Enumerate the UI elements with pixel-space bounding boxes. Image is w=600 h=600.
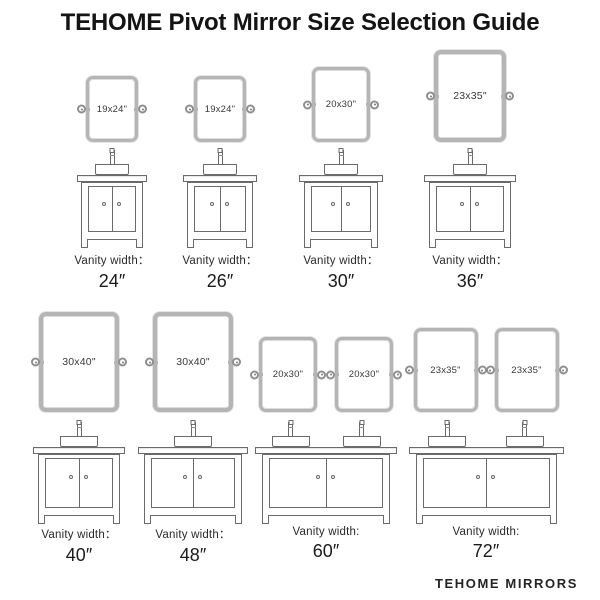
vanity-width-label: Vanity width： (182, 252, 257, 268)
cabinet (429, 182, 511, 240)
countertop (138, 447, 248, 454)
pivot-hardware-icon (31, 358, 40, 367)
sink-icon (174, 436, 212, 447)
door-knob-icon (331, 475, 335, 479)
cabinet (187, 182, 253, 240)
cabinet-leg (246, 239, 253, 248)
countertop (77, 175, 147, 182)
pivot-mirror: 23x35" (495, 328, 559, 412)
pivot-hardware-icon (559, 366, 568, 375)
faucet-icon (288, 422, 293, 436)
mirror-zone: 19x24" (194, 48, 246, 142)
vanity-width-label: Vanity width： (432, 252, 507, 268)
countertop (33, 447, 125, 454)
mirror-size-label: 20x30" (349, 369, 379, 380)
door-divider (79, 459, 80, 507)
cabinet-leg (38, 515, 45, 524)
vanity-drawing (409, 422, 564, 516)
size-option-72: 23x35" 23x35" (388, 312, 584, 562)
cabinet-doors (311, 186, 371, 232)
faucet-icon (218, 150, 223, 164)
sink-basin (174, 422, 212, 447)
pivot-hardware-icon (77, 105, 86, 114)
vanity-drawing (77, 150, 147, 240)
pivot-mirror: 19x24" (86, 76, 138, 142)
sink-area (255, 422, 397, 447)
pivot-mirror: 23x35" (434, 50, 506, 142)
countertop (299, 175, 383, 182)
vanity-width-value: 48″ (180, 545, 206, 566)
mirror-size-label: 23x35" (453, 90, 487, 102)
page-title: TEHOME Pivot Mirror Size Selection Guide (0, 9, 600, 37)
sink-area (409, 422, 564, 447)
brand-footer: TEHOME MIRRORS (435, 576, 578, 591)
door-knob-icon (102, 202, 106, 206)
door-knob-icon (117, 202, 121, 206)
countertop (255, 447, 397, 454)
sink-area (138, 422, 248, 447)
pivot-hardware-icon (303, 100, 312, 109)
door-knob-icon (210, 202, 214, 206)
size-option-36: 23x35" Vanity width： 36″ (404, 48, 536, 292)
sink-icon (343, 436, 381, 447)
faucet-icon (191, 422, 196, 436)
vanity-width-value: 40″ (66, 545, 92, 566)
vanity-width-value: 60″ (313, 541, 339, 562)
cabinet-doors (194, 186, 246, 232)
cabinet-leg (262, 515, 269, 524)
sink-icon (453, 164, 487, 175)
cabinet-doors (151, 458, 235, 508)
mirror-zone: 19x24" (86, 48, 138, 142)
door-knob-icon (475, 202, 479, 206)
cabinet-leg (550, 515, 557, 524)
vanity-width-label: Vanity width： (74, 252, 149, 268)
sink-basin (506, 422, 544, 447)
vanity-drawing (33, 422, 125, 516)
faucet-icon (468, 150, 473, 164)
mirror-size-label: 19x24" (205, 104, 235, 115)
sink-basin (324, 150, 358, 175)
mirror-zone: 30x40" (153, 312, 233, 412)
sink-icon (95, 164, 129, 175)
sink-area (33, 422, 125, 447)
vanity-width-value: 24″ (99, 271, 125, 292)
door-knob-icon (198, 475, 202, 479)
pivot-hardware-icon (246, 105, 255, 114)
pivot-mirror: 30x40" (39, 312, 119, 412)
vanity-width-label: Vanity width: (453, 526, 520, 538)
mirror-size-label: 30x40" (62, 356, 96, 368)
cabinet-leg (187, 239, 194, 248)
vanity-width-value: 26″ (207, 271, 233, 292)
door-knob-icon (183, 475, 187, 479)
sink-icon (428, 436, 466, 447)
pivot-hardware-icon (326, 370, 335, 379)
cabinet (262, 454, 390, 516)
cabinet-doors (436, 186, 504, 232)
mirror-size-guide: TEHOME Pivot Mirror Size Selection Guide… (0, 0, 600, 600)
sink-area (183, 150, 257, 175)
door-divider (326, 459, 327, 507)
pivot-hardware-icon (405, 366, 414, 375)
sink-area (77, 150, 147, 175)
cabinet-leg (504, 239, 511, 248)
door-knob-icon (331, 202, 335, 206)
sink-icon (203, 164, 237, 175)
cabinet (81, 182, 143, 240)
cabinet-leg (371, 239, 378, 248)
mirror-size-label: 23x35" (430, 365, 460, 376)
faucet-icon (359, 422, 364, 436)
cabinet (144, 454, 242, 516)
door-knob-icon (476, 475, 480, 479)
cabinet-doors (269, 458, 383, 508)
pivot-mirror: 20x30" (259, 337, 317, 412)
sink-icon (60, 436, 98, 447)
countertop (183, 175, 257, 182)
faucet-icon (339, 150, 344, 164)
door-divider (470, 187, 471, 231)
faucet-icon (522, 422, 527, 436)
door-knob-icon (225, 202, 229, 206)
faucet-icon (110, 150, 115, 164)
sink-icon (506, 436, 544, 447)
vanity-width-label: Vanity width: (293, 526, 360, 538)
mirror-zone: 20x30" 20x30" (259, 312, 393, 412)
pivot-mirror: 20x30" (335, 337, 393, 412)
sink-basin (272, 422, 310, 447)
pivot-hardware-icon (138, 105, 147, 114)
cabinet (38, 454, 120, 516)
pivot-mirror: 20x30" (312, 67, 370, 142)
door-knob-icon (346, 202, 350, 206)
vanity-drawing (424, 150, 516, 240)
pivot-hardware-icon (486, 366, 495, 375)
pivot-hardware-icon (317, 370, 326, 379)
vanity-width-label: Vanity width： (155, 526, 230, 542)
countertop (424, 175, 516, 182)
cabinet (304, 182, 378, 240)
pivot-hardware-icon (145, 358, 154, 367)
door-knob-icon (84, 475, 88, 479)
vanity-width-value: 36″ (457, 271, 483, 292)
pivot-hardware-icon (370, 100, 379, 109)
sink-area (424, 150, 516, 175)
sink-basin (453, 150, 487, 175)
door-knob-icon (460, 202, 464, 206)
countertop (409, 447, 564, 454)
vanity-width-label: Vanity width： (41, 526, 116, 542)
mirror-size-label: 30x40" (176, 356, 210, 368)
mirror-zone: 30x40" (39, 312, 119, 412)
sink-basin (343, 422, 381, 447)
sink-icon (272, 436, 310, 447)
mirror-zone: 23x35" (434, 48, 506, 142)
door-knob-icon (69, 475, 73, 479)
cabinet-leg (304, 239, 311, 248)
vanity-drawing (299, 150, 383, 240)
sink-basin (203, 150, 237, 175)
mirror-size-label: 20x30" (326, 99, 356, 110)
door-divider (486, 459, 487, 507)
cabinet (416, 454, 557, 516)
mirror-size-label: 20x30" (273, 369, 303, 380)
vanity-drawing (255, 422, 397, 516)
mirror-zone: 23x35" 23x35" (414, 312, 559, 412)
door-divider (193, 459, 194, 507)
size-option-30: 20x30" Vanity width： 30″ (279, 48, 403, 292)
cabinet-doors (88, 186, 136, 232)
pivot-hardware-icon (505, 92, 514, 101)
cabinet-leg (416, 515, 423, 524)
mirror-zone: 20x30" (312, 48, 370, 142)
pivot-hardware-icon (185, 105, 194, 114)
cabinet-leg (144, 515, 151, 524)
pivot-hardware-icon (426, 92, 435, 101)
door-divider (341, 187, 342, 231)
cabinet-leg (136, 239, 143, 248)
mirror-size-label: 23x35" (511, 365, 541, 376)
door-divider (220, 187, 221, 231)
vanity-width-value: 72″ (473, 541, 499, 562)
vanity-drawing (138, 422, 248, 516)
sink-icon (324, 164, 358, 175)
faucet-icon (445, 422, 450, 436)
sink-basin (60, 422, 98, 447)
cabinet-leg (429, 239, 436, 248)
cabinet-doors (45, 458, 113, 508)
vanity-width-label: Vanity width： (303, 252, 378, 268)
door-knob-icon (316, 475, 320, 479)
cabinet-doors (423, 458, 550, 508)
size-option-26: 19x24" Vanity width： 26″ (163, 48, 277, 292)
size-option-24: 19x24" Vanity width： 24″ (57, 48, 167, 292)
vanity-drawing (183, 150, 257, 240)
sink-area (299, 150, 383, 175)
faucet-icon (77, 422, 82, 436)
pivot-mirror: 23x35" (414, 328, 478, 412)
pivot-mirror: 30x40" (153, 312, 233, 412)
mirror-size-label: 19x24" (97, 104, 127, 115)
door-divider (112, 187, 113, 231)
pivot-mirror: 19x24" (194, 76, 246, 142)
sink-basin (428, 422, 466, 447)
sink-basin (95, 150, 129, 175)
vanity-width-value: 30″ (328, 271, 354, 292)
pivot-hardware-icon (250, 370, 259, 379)
cabinet-leg (81, 239, 88, 248)
door-knob-icon (491, 475, 495, 479)
